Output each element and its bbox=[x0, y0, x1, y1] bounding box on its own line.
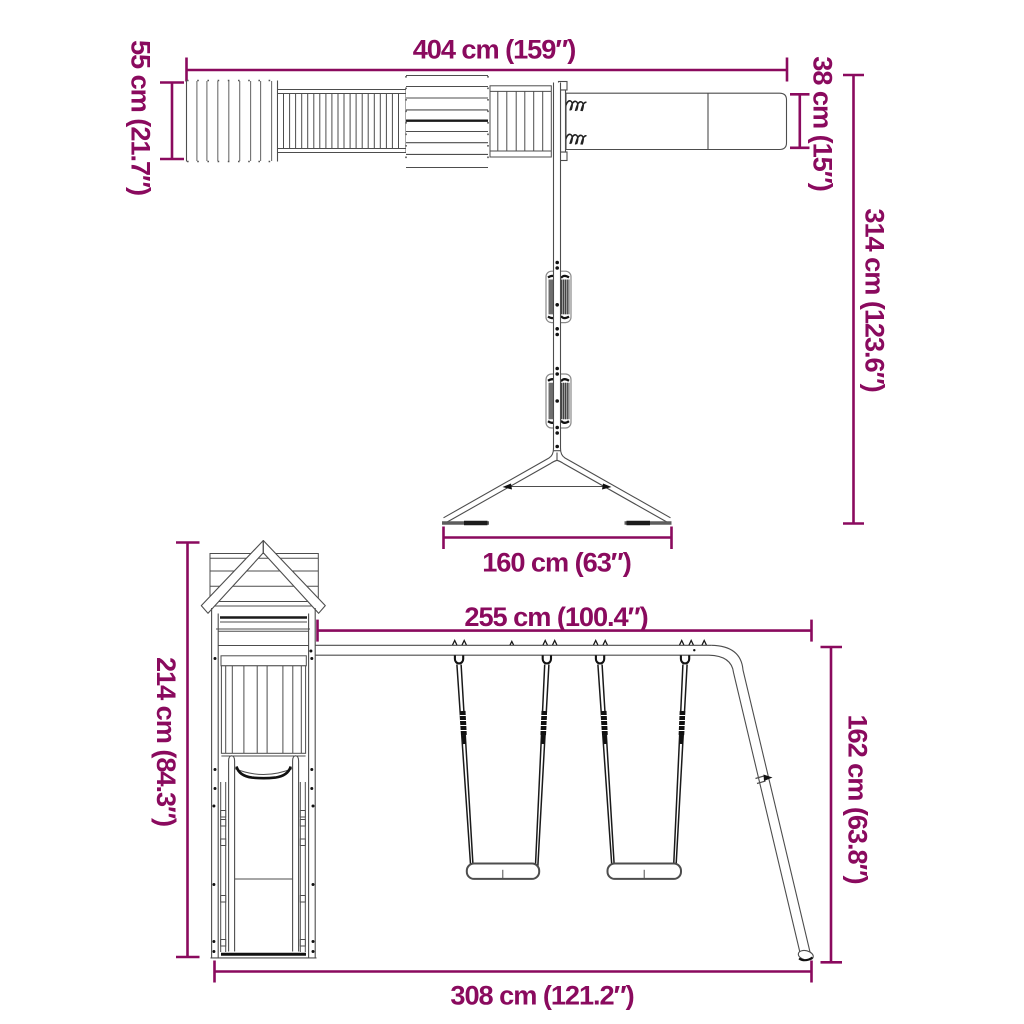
svg-text:162 cm (63.8″): 162 cm (63.8″) bbox=[843, 714, 874, 883]
svg-text:255 cm (100.4″): 255 cm (100.4″) bbox=[464, 601, 647, 632]
svg-text:314 cm (123.6″): 314 cm (123.6″) bbox=[860, 208, 891, 391]
svg-text:160 cm (63″): 160 cm (63″) bbox=[482, 547, 631, 578]
svg-text:214 cm (84.3″): 214 cm (84.3″) bbox=[151, 657, 182, 826]
svg-text:308 cm (121.2″): 308 cm (121.2″) bbox=[450, 980, 633, 1011]
svg-text:38 cm (15″): 38 cm (15″) bbox=[808, 56, 839, 190]
svg-text:404 cm (159″): 404 cm (159″) bbox=[413, 34, 576, 65]
svg-text:55 cm (21.7″): 55 cm (21.7″) bbox=[126, 40, 157, 195]
